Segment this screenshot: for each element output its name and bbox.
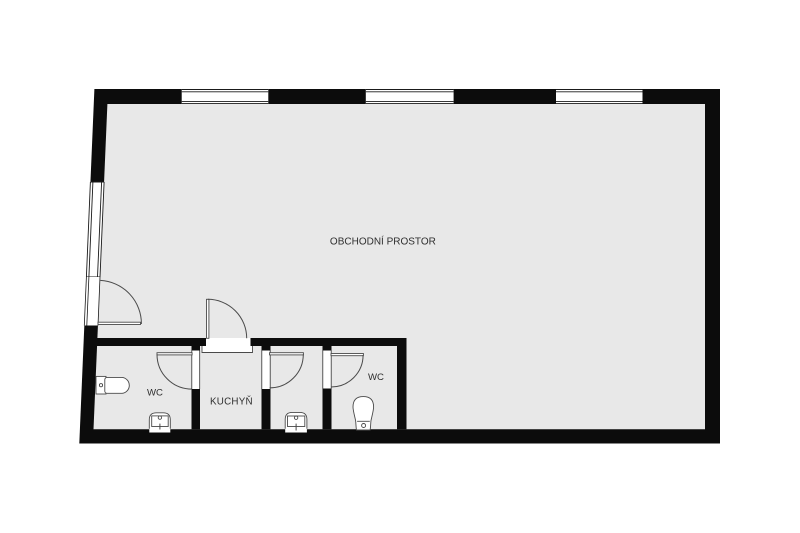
svg-text:OBCHODNÍ PROSTOR: OBCHODNÍ PROSTOR <box>330 234 436 247</box>
svg-text:WC: WC <box>147 387 163 398</box>
svg-text:WC: WC <box>368 372 384 383</box>
svg-text:KUCHYŇ: KUCHYŇ <box>210 397 253 408</box>
